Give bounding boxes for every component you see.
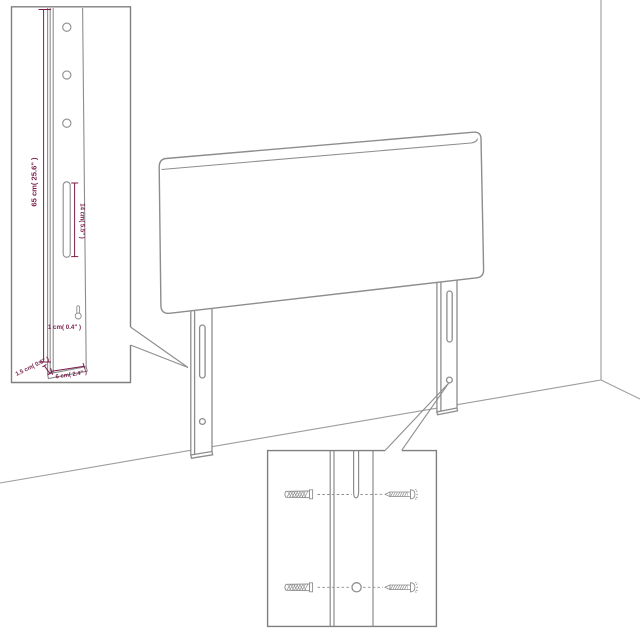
product-diagram: 65 cm( 25.6" ) 14 cm( 5.5" ) 1 cm( 0.4" … xyxy=(0,0,640,640)
leg-right-hole xyxy=(447,377,453,383)
slot-label: 14 cm( 5.5" ) xyxy=(79,203,85,239)
headboard-leg-right xyxy=(437,274,458,414)
diagram-canvas: 65 cm( 25.6" ) 14 cm( 5.5" ) 1 cm( 0.4" … xyxy=(0,0,640,640)
callout-lines-right xyxy=(385,383,448,450)
callout-lines-left xyxy=(131,327,189,368)
callout-right-inner xyxy=(402,383,449,450)
floor-line-right xyxy=(601,380,640,399)
leg-right-slot xyxy=(447,291,452,342)
leg-left-slot xyxy=(200,325,206,378)
callout-left-upper xyxy=(131,327,189,368)
callout-right-outer xyxy=(385,383,448,450)
leg-left-hole xyxy=(200,419,206,425)
callout-left-lower xyxy=(131,345,189,368)
headboard-panel xyxy=(159,132,483,313)
headboard-leg-left xyxy=(191,300,213,458)
panel-outline xyxy=(159,132,483,313)
wall-plug-top xyxy=(285,490,313,499)
inset-mounting-detail xyxy=(268,451,437,627)
height-label: 65 cm( 25.6" ) xyxy=(30,157,39,207)
inset-mounting-background xyxy=(268,451,437,627)
keyhole-label: 1 cm( 0.4" ) xyxy=(48,324,81,331)
inset-leg-detail: 65 cm( 25.6" ) 14 cm( 5.5" ) 1 cm( 0.4" … xyxy=(12,7,131,383)
wall-plug-bottom xyxy=(285,583,313,592)
mount-hole xyxy=(352,583,361,592)
